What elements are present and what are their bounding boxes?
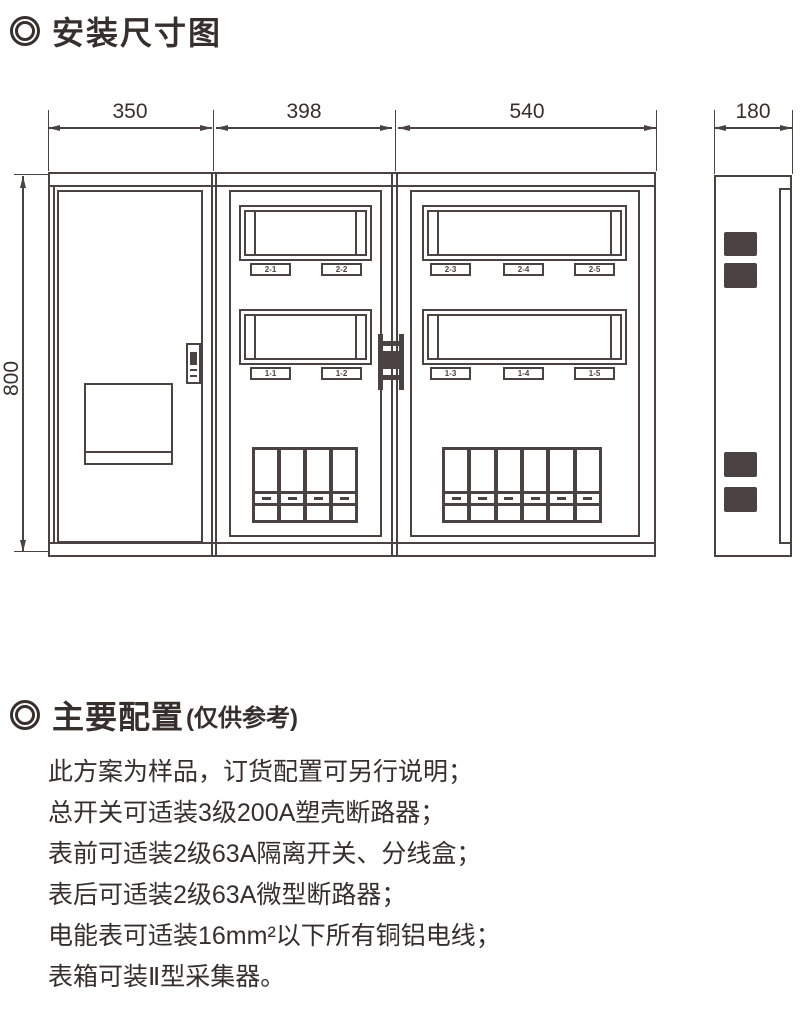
meter-window-frame [244,314,367,360]
vent-block [724,232,757,256]
breaker-module [255,450,277,520]
extension-line [14,551,48,552]
hinge-rung [378,351,404,369]
config-text-block: 此方案为样品，订货配置可另行说明； 总开关可适装3级200A塑壳断路器； 表前可… [48,752,788,998]
meter-window-frame [427,210,622,256]
left-wall-line [53,187,55,542]
breaker-module [307,450,329,520]
extension-line [213,110,214,171]
dimension-line-800 [22,176,24,552]
dim-width-side: 180 [718,100,788,124]
meter-number-plate: 2-1 [250,263,291,276]
breaker-module [498,450,520,520]
section-divider [215,172,217,557]
meter-window [239,205,372,261]
breaker-block [442,447,602,523]
extension-line [48,110,49,171]
meter-number-plate: 2-5 [574,263,615,276]
breaker-module [471,450,493,520]
breaker-module [524,450,546,520]
hinge-rung [378,341,404,346]
meter-window-line [355,314,357,360]
config-note: (仅供参考) [186,698,298,733]
extension-line [656,110,657,171]
meter-window-line [610,210,612,256]
bullseye-icon [10,700,40,730]
config-line: 总开关可适装3级200A塑壳断路器； [48,793,788,834]
config-line: 电能表可适装16mm²以下所有铜铝电线； [48,916,788,957]
meter-number-plate: 2-4 [503,263,544,276]
config-line: 表前可适装2级63A隔离开关、分线盒； [48,834,788,875]
meter-window-frame [427,314,622,360]
meter-number-plate: 1-2 [321,367,362,380]
meter-window [239,309,372,365]
top-cap-line [48,185,656,187]
dim-height: 800 [0,336,24,396]
dim-width-middle: 398 [269,100,339,124]
config-line: 表后可适装2级63A微型断路器； [48,875,788,916]
extension-line [14,174,48,175]
meter-window [422,205,627,261]
door-panel [57,190,203,543]
page-title-row: 安装尺寸图 [10,8,222,54]
breaker-module [577,450,599,520]
breaker-block [252,447,358,523]
meter-number-plate: 1-1 [250,367,291,380]
meter-number-plate: 1-3 [430,367,471,380]
lock-block [190,352,197,365]
dimension-line-350 [48,127,212,129]
dimension-line-180 [714,127,792,129]
hinge [378,334,404,390]
page: 安装尺寸图 350 398 540 180 800 [0,0,800,1012]
lock-line [190,369,197,371]
meter-window-line [437,314,439,360]
meter-number-plate: 1-4 [503,367,544,380]
breaker-module [550,450,572,520]
meter-window-line [437,210,439,256]
page-title: 安装尺寸图 [52,8,222,54]
breaker-module [281,450,303,520]
meter-number-plate: 2-3 [430,263,471,276]
dim-width-right: 540 [492,100,562,124]
config-line: 表箱可装Ⅱ型采集器。 [48,957,788,998]
meter-number-plate: 1-5 [574,367,615,380]
dimension-line-540 [398,127,656,129]
extension-line [395,110,396,171]
meter-number-plate: 2-2 [321,263,362,276]
vent-block [724,487,757,512]
hinge-rung [378,375,404,380]
door-lock [186,343,201,384]
vent-block [724,263,757,288]
config-line: 此方案为样品，订货配置可另行说明； [48,752,788,793]
lock-line [190,375,197,377]
extension-line [792,110,793,174]
door-window-divider [86,451,171,453]
config-heading: 主要配置 [52,692,184,738]
vent-block [724,452,757,477]
dimension-line-398 [216,127,392,129]
bullseye-icon [10,16,40,46]
extension-line [714,110,715,174]
meter-window-line [254,210,256,256]
config-heading-row: 主要配置 (仅供参考) [10,692,298,738]
meter-window-line [610,314,612,360]
meter-window-line [355,210,357,256]
section-divider [211,172,213,557]
meter-window-line [254,314,256,360]
dim-width-left: 350 [95,100,165,124]
meter-window-frame [244,210,367,256]
meter-window [422,309,627,365]
breaker-module [333,450,355,520]
breaker-module [445,450,467,520]
side-door-profile [779,188,792,544]
